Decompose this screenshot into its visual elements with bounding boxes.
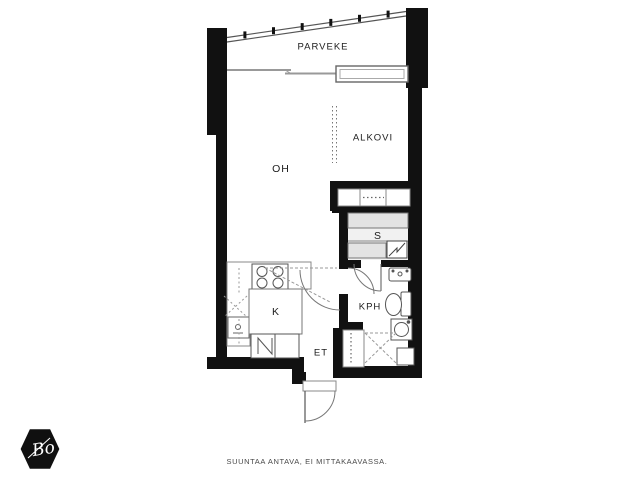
toilet-icon — [386, 292, 412, 316]
floorplan-drawing — [0, 0, 640, 480]
room-label-keittio: K — [272, 306, 280, 318]
room-label-kph: KPH — [359, 302, 382, 313]
room-label-et: ET — [314, 348, 328, 359]
drying-area-dashed-icon — [365, 333, 396, 363]
room-label-parveke: PARVEKE — [297, 42, 348, 53]
fridge-freezer-icon — [251, 334, 299, 358]
bathroom-sink-icon — [389, 268, 411, 281]
room-label-oh: OH — [272, 163, 290, 175]
sauna-heater-icon — [387, 241, 407, 258]
disclaimer-text: SUUNTAA ANTAVA, EI MITTAKAAVASSA. — [227, 457, 388, 466]
washing-machine-icon — [391, 319, 412, 340]
sliding-window-icon — [227, 70, 336, 74]
entry-closet-icon — [343, 330, 364, 367]
room-label-sauna: S — [374, 230, 382, 242]
utility-box — [397, 348, 414, 365]
bo-logo-text: Bo — [30, 438, 57, 462]
interior-door-swing-icons — [348, 264, 381, 294]
entrance-door-icon — [303, 381, 336, 423]
balcony-glazing-icon — [227, 11, 406, 42]
window-icon — [336, 66, 408, 82]
room-label-alkovi: ALKOVI — [353, 133, 393, 144]
wardrobe-row-icon — [338, 189, 410, 206]
alcove-dashed-line — [333, 106, 337, 163]
floorplan-page: PARVEKE OH ALKOVI S K KPH ET SUUNTAA ANT… — [0, 0, 640, 480]
